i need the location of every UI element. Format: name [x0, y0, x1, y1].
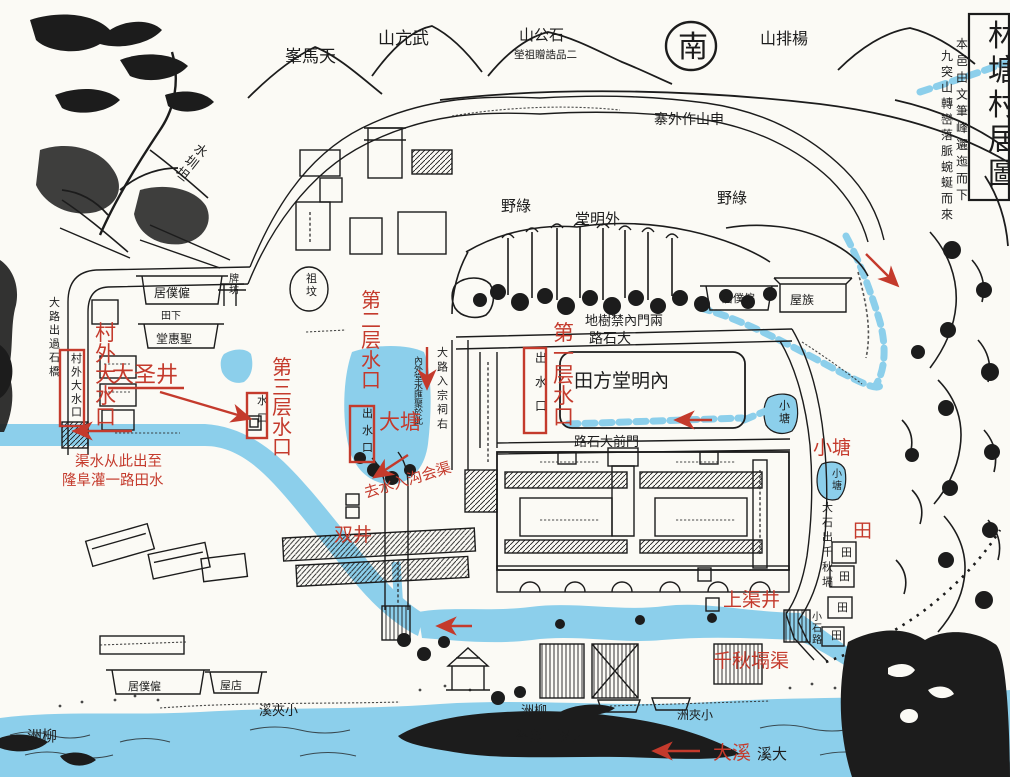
small-gorge-isle: 洲夾小 — [677, 708, 713, 722]
paifang-gate: 牌坊 — [229, 272, 239, 297]
field-char-3: 田 — [837, 602, 848, 614]
map-title: 林塘村居圖 — [988, 20, 1010, 191]
road-to-shrine: 大路入宗祠右 — [437, 345, 448, 431]
shigong-mountain: 山公石 — [519, 27, 564, 44]
big-creek-black: 溪大 — [757, 746, 787, 763]
well-pond — [221, 350, 253, 383]
big-stone-road: 路石大 — [589, 331, 631, 347]
anno-qianqiu-channel: 千秋塥渠 — [713, 650, 789, 672]
outer-mingtang: 堂明外 — [575, 211, 620, 228]
anno-big-creek: 大溪 — [713, 742, 751, 764]
lower-field: 田下 — [161, 311, 181, 322]
yangpai-mountain: 山排楊 — [760, 30, 808, 48]
small-gorge-creek: 溪夾小 — [259, 703, 298, 718]
village-outlet-black: 村外大水口 — [71, 351, 82, 419]
anno-dasheng-well: 大圣井 — [112, 362, 178, 387]
anno-small-pond: 小塘 — [813, 437, 851, 459]
servants-house-right: 居僕僱 — [722, 291, 755, 305]
green-field-left: 野綠 — [501, 198, 531, 215]
clan-house: 屋族 — [790, 293, 814, 307]
red-labels: 村外大水口大圣井第三层水口第二层水口大塘去水入沟会渠第一层水口小塘田上渠井千秋塥… — [62, 289, 872, 764]
linతang-village-map: 林塘村居圖本邑由文筆峰邐迤而下九突山轉巒落脈蜿蜒而來峯馬天山亢武山公石塋祖贈誥品… — [0, 0, 1010, 777]
servants-house-left: 居僕僱 — [154, 285, 190, 300]
outlet-text-2: 出水口 — [362, 406, 373, 454]
tianma-peak: 峯馬天 — [285, 47, 336, 66]
front-gate-road: 路石大前門 — [574, 434, 639, 449]
shenghui-hall: 堂惠聖 — [156, 332, 192, 346]
anno-note-line-1: 渠水从此出至 — [75, 453, 162, 470]
red-pointer-dasheng-well — [160, 392, 248, 418]
map-canvas: 林塘村居圖本邑由文筆峰邐迤而下九突山轉巒落脈蜿蜒而來峯馬天山亢武山公石塋祖贈誥品… — [0, 0, 1010, 777]
anno-second-layer-outlet: 第二层水口 — [361, 289, 381, 392]
anno-field: 田 — [853, 521, 872, 542]
anno-upper-channel-well: 上渠井 — [723, 589, 780, 611]
south-char: 南 — [678, 31, 708, 64]
shigong-tomb-note: 塋祖贈誥品二 — [514, 48, 577, 61]
ancestor-grave: 祖坟 — [306, 271, 317, 298]
corner-rocks — [841, 630, 1010, 777]
red-arrow-hill-stream — [866, 254, 896, 284]
shop-house: 屋店 — [220, 678, 242, 692]
willow-isle-mid: 洲柳 — [521, 703, 547, 718]
willow-isle-left: 洲柳 — [27, 728, 57, 745]
green-field-right: 野綠 — [717, 190, 747, 207]
shuizhentan: 水圳坦 — [173, 141, 211, 184]
servants-house-bottom: 居僕僱 — [128, 679, 161, 693]
inner-mingtang-field: 田方堂明內 — [574, 370, 669, 392]
anno-double-well: 双井 — [334, 524, 372, 546]
title-note-2: 九突山轉巒落脈蜿蜒而來 — [941, 49, 953, 221]
anno-first-layer-outlet: 第一层水口 — [553, 321, 574, 429]
terrain — [0, 15, 1010, 777]
wukang-mountain: 山亢武 — [378, 29, 429, 48]
hill-trees — [905, 241, 1000, 609]
roads — [62, 96, 884, 662]
field-char-1: 田 — [841, 547, 852, 559]
field-char-2: 田 — [839, 571, 850, 583]
outer-stockade: 寨外作山申 — [654, 111, 724, 128]
anno-big-pond: 大塘 — [379, 410, 421, 434]
fish-rock-note: 碆魚中溪大 — [515, 729, 585, 745]
anno-note-line-2: 隆阜灌一路田水 — [62, 472, 164, 489]
road-stone-bridge: 大路出過石橋 — [49, 295, 60, 378]
anno-third-layer-outlet: 第三层水口 — [272, 356, 292, 459]
field-char-4: 田 — [831, 630, 842, 642]
forbidden-tree-ground: 地樹禁內門兩 — [585, 313, 663, 328]
small-stone-road: 小石路 — [812, 611, 822, 646]
